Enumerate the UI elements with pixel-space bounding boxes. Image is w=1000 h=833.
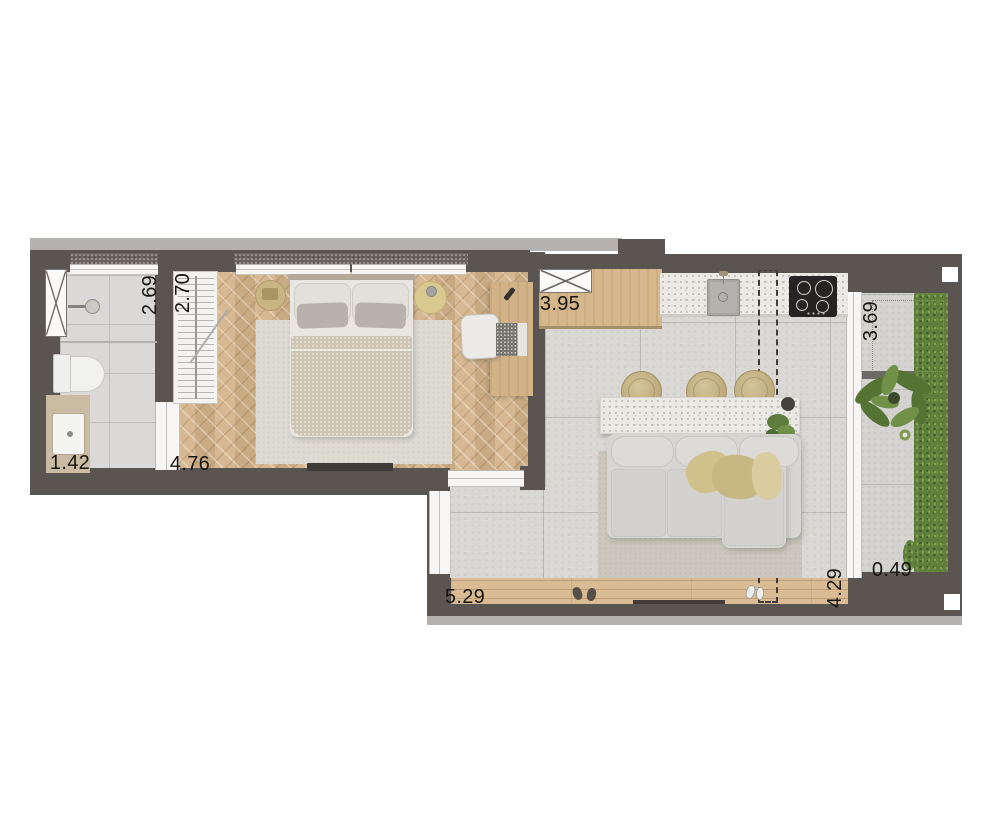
kitchen-faucet-spout — [723, 275, 725, 284]
blanket-fold — [291, 349, 412, 351]
dim-bathroom-depth: 2.69 — [140, 263, 160, 327]
desk-chair — [460, 313, 501, 360]
laptop-screen — [517, 323, 527, 356]
burner-icon — [797, 281, 811, 295]
dim-kitchen-width: 3.95 — [528, 294, 592, 314]
shower-divider — [60, 341, 157, 343]
laptop-keyboard — [496, 323, 517, 356]
wall-right — [948, 254, 962, 616]
dim-living-depth: 4.29 — [825, 556, 845, 620]
dim-balcony-width: 0.49 — [860, 560, 924, 580]
burner-icon — [796, 299, 808, 311]
shaft-bathroom — [45, 269, 67, 337]
wall-notch-bottom-right — [944, 594, 960, 610]
bedroom-sliding-door — [448, 470, 524, 487]
sink-faucet-icon — [67, 431, 73, 437]
shaft-kitchen — [539, 269, 592, 293]
x-mark-icon — [46, 270, 66, 336]
slab-edge-bottom — [427, 616, 962, 625]
sofa-seat-cushion — [611, 469, 666, 537]
sandals-light — [756, 587, 764, 600]
toilet-tank — [53, 354, 71, 393]
nightstand-tray — [262, 288, 278, 300]
tv-console — [307, 463, 393, 471]
bed-blanket — [291, 336, 412, 436]
cooktop-controls — [806, 312, 826, 315]
wall-bump — [618, 239, 665, 256]
dim-bedroom-width: 4.76 — [158, 454, 222, 474]
living-window — [429, 491, 451, 574]
floor-plan: 2.69 2.70 1.42 4.76 3.95 3.69 0.49 4.29 … — [0, 0, 1000, 833]
table-lamp-icon — [426, 286, 437, 297]
dim-living-width: 5.29 — [433, 587, 497, 607]
deck-door-track — [633, 600, 725, 604]
cooktop — [789, 276, 837, 317]
wall-notch-top-right — [942, 267, 958, 282]
pillow-accent — [355, 302, 407, 329]
burner-icon — [815, 280, 833, 298]
sofa-back-cushion — [611, 436, 674, 467]
closet-rod — [195, 276, 197, 399]
dim-closet-length: 2.70 — [173, 261, 193, 325]
pillow-accent — [297, 302, 349, 329]
dim-vanity-width: 1.42 — [38, 453, 102, 473]
shower-head-icon — [85, 299, 100, 314]
balcony-potted-plant — [845, 352, 939, 452]
dim-balcony-length: 3.69 — [861, 289, 881, 353]
x-mark-icon — [540, 270, 591, 292]
sink-drain-icon — [718, 292, 728, 302]
